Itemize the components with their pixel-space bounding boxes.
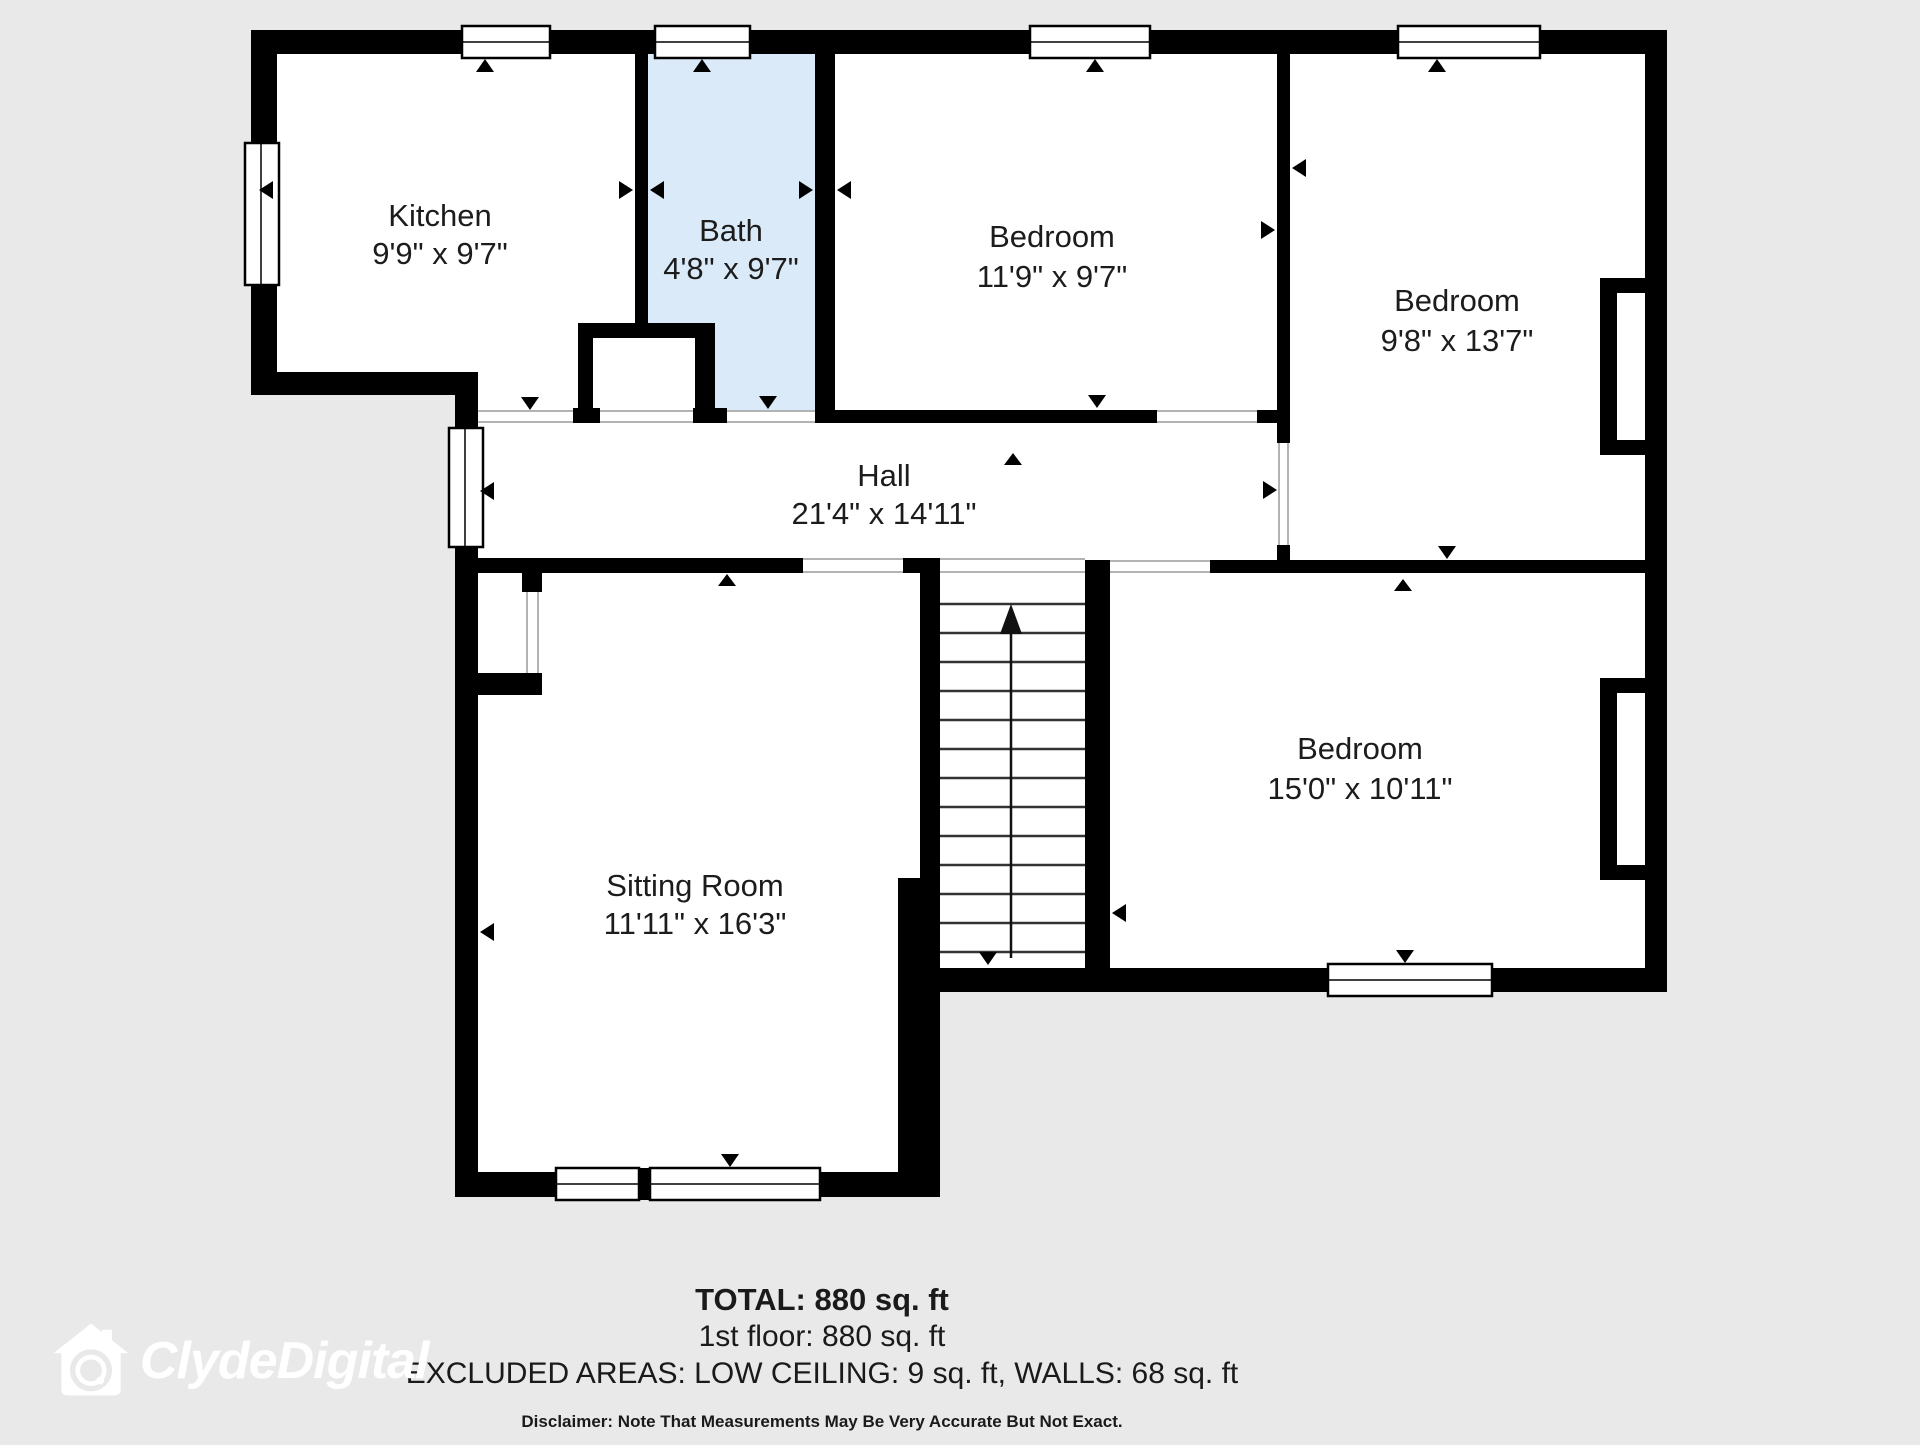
- floor-area-text: 1st floor: 880 sq. ft: [406, 1322, 1239, 1352]
- excluded-areas-text: EXCLUDED AREAS: LOW CEILING: 9 sq. ft, W…: [406, 1359, 1239, 1389]
- room-label-bath: Bath: [699, 213, 763, 248]
- wall-stairs-left: [920, 573, 940, 878]
- room-dims-kitchen: 9'9" x 9'7": [372, 236, 508, 271]
- window-bedroom3-bottom: [1328, 964, 1492, 996]
- wall-bedroom3-closet-stub-bottom: [1600, 865, 1648, 880]
- window-hall-left: [449, 428, 483, 547]
- room-dims-sitting-room: 11'11" x 16'3": [604, 906, 787, 941]
- window-bath-top: [655, 26, 750, 58]
- room-label-bedroom-bottom-right: Bedroom: [1297, 731, 1423, 766]
- wall-sitting-top: [455, 558, 803, 573]
- disclaimer-text: Disclaimer: Note That Measurements May B…: [406, 1413, 1239, 1430]
- area-summary: TOTAL: 880 sq. ft 1st floor: 880 sq. ft …: [406, 1284, 1239, 1430]
- wall-closet-right-foot: [693, 408, 727, 423]
- room-label-bedroom-top-right: Bedroom: [1394, 283, 1520, 318]
- room-dims-bedroom-top-right: 9'8" x 13'7": [1381, 323, 1534, 358]
- room-label-bedroom-top-middle: Bedroom: [989, 219, 1115, 254]
- wall-bedroom2-bedroom3: [1210, 560, 1648, 573]
- window-bedroom2-top: [1398, 26, 1540, 58]
- wall-right: [1645, 30, 1667, 992]
- wall-closet-left-foot: [573, 408, 600, 423]
- wall-sitting-closet-bottom: [455, 673, 542, 695]
- room-label-sitting-room: Sitting Room: [606, 868, 783, 903]
- wall-bedroom1-bedroom2: [1277, 30, 1290, 443]
- wall-hall-top-a: [815, 410, 1157, 423]
- window-kitchen-left: [245, 143, 279, 285]
- wall-bedroom3-bottom: [898, 968, 1667, 992]
- total-area-text: TOTAL: 880 sq. ft: [406, 1284, 1239, 1315]
- wall-bedroom2-closet: [1600, 278, 1617, 455]
- window-kitchen-top: [462, 26, 550, 58]
- wall-bedroom2-closet-stub-bottom: [1600, 440, 1648, 455]
- window-bedroom1-top: [1030, 26, 1150, 58]
- wall-kitchen-bottom: [251, 372, 478, 395]
- wall-sitting-closet-stub: [522, 573, 542, 592]
- window-sitting-bottom-right: [650, 1168, 820, 1200]
- floor-plan-canvas: Kitchen 9'9" x 9'7" Bath 4'8" x 9'7" Bed…: [0, 0, 1920, 1440]
- window-mullion: [639, 1168, 650, 1200]
- wall-bedroom3-closet: [1600, 678, 1617, 880]
- wall-bedroom2-closet-stub-top: [1600, 278, 1648, 293]
- floor-plan: Kitchen 9'9" x 9'7" Bath 4'8" x 9'7" Bed…: [0, 0, 1920, 1440]
- wall-sitting-top-stub: [903, 558, 940, 573]
- room-dims-hall: 21'4" x 14'11": [792, 496, 977, 531]
- room-dims-bedroom-top-middle: 11'9" x 9'7": [977, 259, 1127, 294]
- house-camera-logo-icon: [52, 1322, 130, 1400]
- wall-closet-top: [578, 323, 715, 338]
- room-dims-bedroom-bottom-right: 15'0" x 10'11": [1268, 771, 1453, 806]
- room-label-hall: Hall: [857, 458, 910, 493]
- brand-watermark: ClydeDigital: [52, 1322, 429, 1400]
- wall-bedroom3-closet-stub-top: [1600, 678, 1648, 693]
- window-sitting-bottom-left: [556, 1168, 639, 1200]
- wall-kitchen-bath: [635, 54, 648, 338]
- wall-low-ceiling-column: [898, 878, 940, 1197]
- wall-stairs-right: [1085, 560, 1110, 968]
- brand-name: ClydeDigital: [140, 1331, 429, 1391]
- room-dims-bath: 4'8" x 9'7": [663, 251, 799, 286]
- room-label-kitchen: Kitchen: [388, 198, 491, 233]
- wall-bath-bedroom1: [815, 54, 835, 423]
